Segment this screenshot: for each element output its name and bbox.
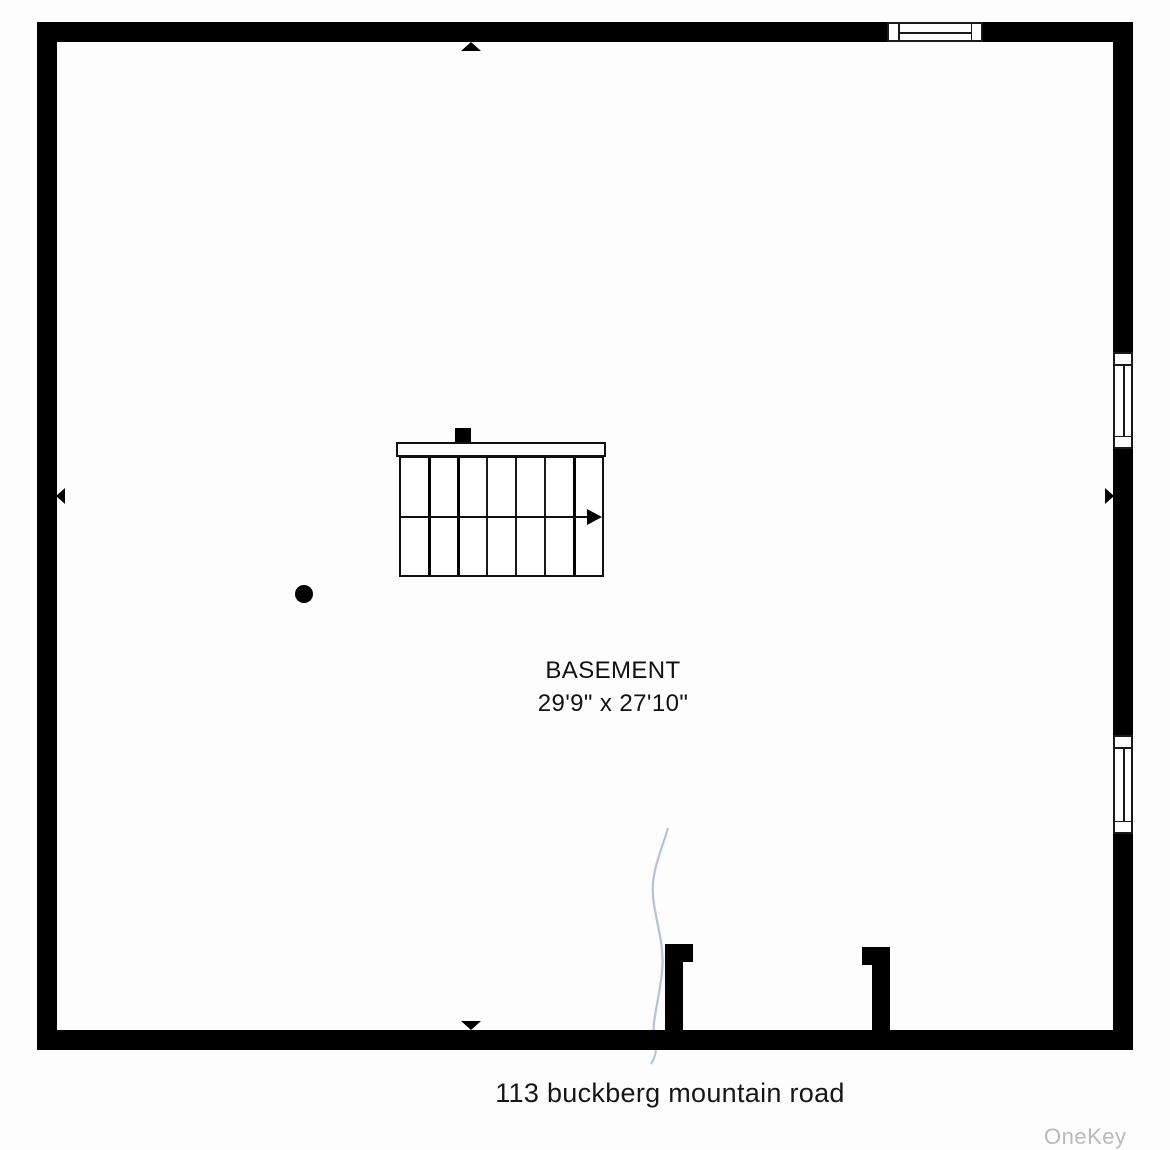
room-label-block: BASEMENT 29'9" x 27'10" (413, 654, 813, 720)
stair-run-line (401, 516, 590, 518)
wall-marker-left-icon (56, 488, 65, 504)
watermark-text: OneKey MLS (1044, 1124, 1170, 1150)
wall-marker-bottom-icon (461, 1021, 481, 1030)
wall-bottom (37, 1030, 1133, 1050)
window-top-icon (887, 22, 983, 42)
support-column-icon (295, 585, 313, 603)
floorplan-canvas: BASEMENT 29'9" x 27'10" 113 buckberg mou… (0, 0, 1170, 1150)
wall-marker-top-icon (461, 42, 481, 51)
wall-right (1113, 22, 1133, 1050)
wall-left (37, 22, 57, 1050)
room-name: BASEMENT (413, 654, 813, 687)
staircase-icon (399, 456, 604, 577)
door-jamb-right (872, 947, 890, 1032)
door-jamb-left-cap (683, 944, 693, 962)
window-right-upper-icon (1113, 352, 1133, 449)
stair-landing-post-icon (455, 428, 471, 442)
room-dimensions: 29'9" x 27'10" (413, 687, 813, 720)
door-jamb-right-cap (862, 947, 872, 965)
door-jamb-left (665, 944, 683, 1032)
window-right-lower-icon (1113, 735, 1133, 834)
wall-marker-right-icon (1105, 488, 1114, 504)
address-caption: 113 buckberg mountain road (250, 1078, 1090, 1109)
stair-direction-arrow-icon (587, 509, 602, 525)
stair-rail (396, 442, 606, 457)
